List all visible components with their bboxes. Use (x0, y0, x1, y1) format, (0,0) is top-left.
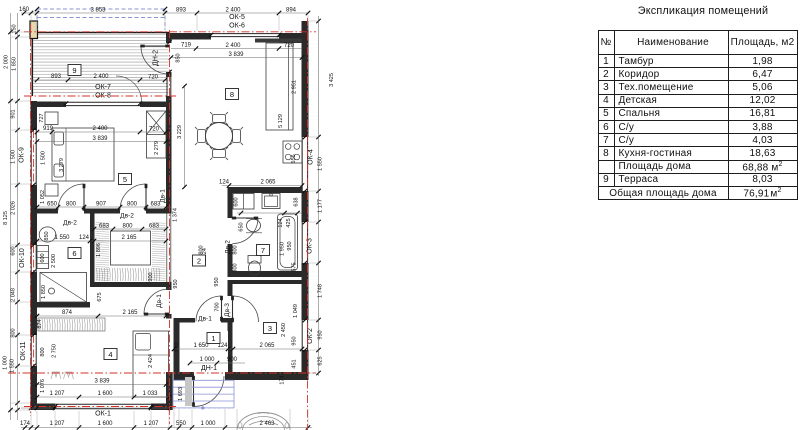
svg-text:1 950: 1 950 (280, 242, 286, 256)
svg-text:2 065: 2 065 (259, 343, 275, 349)
svg-text:Дв-2: Дв-2 (63, 220, 77, 227)
svg-text:ДН-1: ДН-1 (201, 365, 217, 372)
svg-text:1 500: 1 500 (41, 151, 47, 165)
svg-text:3 853: 3 853 (90, 8, 106, 14)
svg-text:ОК-2: ОК-2 (307, 328, 314, 344)
svg-text:727: 727 (39, 113, 45, 122)
svg-text:720: 720 (149, 127, 160, 133)
svg-text:3 839: 3 839 (228, 52, 244, 58)
svg-text:1 600: 1 600 (97, 421, 113, 427)
svg-text:800: 800 (11, 328, 17, 337)
svg-text:2 279: 2 279 (154, 141, 160, 155)
svg-text:ОК-11: ОК-11 (20, 341, 27, 360)
svg-text:650: 650 (47, 202, 58, 208)
svg-text:1 000: 1 000 (199, 357, 215, 363)
svg-text:9: 9 (72, 66, 76, 75)
svg-text:893: 893 (51, 74, 62, 80)
svg-text:1 207: 1 207 (143, 421, 159, 427)
svg-text:5: 5 (123, 175, 127, 184)
svg-text:720: 720 (148, 75, 159, 81)
svg-text:850: 850 (44, 231, 50, 240)
svg-text:600: 600 (234, 197, 240, 206)
svg-text:ОК-4: ОК-4 (308, 149, 315, 165)
svg-text:950: 950 (292, 336, 298, 345)
svg-text:451: 451 (292, 359, 298, 368)
svg-text:160: 160 (19, 7, 30, 13)
svg-text:625: 625 (318, 356, 324, 365)
svg-text:907: 907 (96, 202, 107, 208)
svg-text:1 177: 1 177 (318, 199, 324, 213)
svg-text:2 000: 2 000 (4, 55, 10, 69)
svg-text:1 374: 1 374 (173, 208, 179, 222)
svg-text:3: 3 (268, 324, 272, 333)
svg-text:124: 124 (219, 180, 230, 186)
svg-text:Дв-2: Дв-2 (120, 213, 134, 220)
svg-text:2 463: 2 463 (259, 421, 275, 427)
svg-text:683: 683 (149, 224, 160, 230)
svg-text:556: 556 (291, 154, 297, 163)
svg-text:8 125: 8 125 (3, 211, 9, 225)
svg-text:2 165: 2 165 (121, 235, 137, 241)
svg-text:ОК-10: ОК-10 (19, 248, 26, 268)
svg-text:2 951: 2 951 (292, 80, 298, 94)
svg-text:Дв-1: Дв-1 (160, 189, 167, 203)
svg-text:550: 550 (174, 342, 180, 351)
svg-text:8: 8 (230, 90, 234, 99)
svg-text:124: 124 (278, 218, 284, 227)
svg-text:174: 174 (20, 421, 31, 427)
svg-text:700: 700 (215, 302, 221, 311)
svg-text:893: 893 (176, 8, 187, 14)
svg-text:2 500: 2 500 (51, 254, 57, 268)
svg-text:174: 174 (280, 375, 286, 384)
svg-text:1 207: 1 207 (49, 421, 65, 427)
svg-text:5 129: 5 129 (278, 114, 284, 128)
svg-text:850: 850 (176, 53, 182, 62)
svg-text:3 229: 3 229 (177, 125, 183, 139)
svg-text:ДН-2: ДН-2 (153, 50, 160, 66)
svg-text:6: 6 (72, 249, 76, 258)
svg-text:1 550: 1 550 (54, 235, 70, 241)
svg-text:2 750: 2 750 (52, 344, 58, 358)
svg-text:919: 919 (43, 126, 54, 132)
svg-text:950: 950 (173, 279, 179, 288)
svg-text:900: 900 (227, 357, 238, 363)
svg-text:650: 650 (239, 222, 245, 231)
svg-text:950: 950 (318, 330, 324, 339)
svg-text:Дв-1: Дв-1 (156, 294, 163, 308)
svg-text:4: 4 (108, 350, 112, 359)
svg-text:1 076: 1 076 (40, 379, 46, 393)
svg-text:1 600: 1 600 (97, 391, 113, 397)
svg-text:675: 675 (97, 292, 103, 301)
svg-text:Дв-2: Дв-2 (225, 240, 232, 254)
svg-text:800: 800 (40, 347, 46, 356)
svg-text:3 425: 3 425 (329, 73, 335, 87)
svg-text:1 500: 1 500 (11, 150, 17, 164)
svg-text:720: 720 (284, 43, 295, 49)
svg-text:575: 575 (292, 262, 298, 271)
svg-text:2 026: 2 026 (11, 201, 17, 215)
svg-text:683: 683 (99, 224, 110, 230)
svg-text:800: 800 (66, 202, 77, 208)
svg-text:638: 638 (294, 197, 300, 206)
svg-text:1 748: 1 748 (318, 284, 324, 298)
svg-text:950: 950 (214, 277, 220, 286)
svg-text:874: 874 (62, 310, 73, 316)
svg-text:ОК-9: ОК-9 (19, 147, 26, 163)
svg-text:1 850: 1 850 (41, 285, 47, 299)
svg-text:600: 600 (40, 253, 46, 262)
svg-text:2 065: 2 065 (260, 180, 276, 186)
svg-text:800: 800 (122, 224, 133, 230)
svg-text:ОК-6: ОК-6 (229, 23, 245, 30)
svg-text:1 850: 1 850 (12, 57, 18, 71)
svg-text:874: 874 (37, 319, 43, 328)
svg-text:950: 950 (287, 241, 293, 250)
svg-text:ОК-5: ОК-5 (229, 14, 245, 21)
svg-text:Дв-1: Дв-1 (198, 316, 212, 323)
svg-text:900: 900 (148, 272, 154, 281)
svg-text:425: 425 (286, 218, 292, 227)
svg-text:124: 124 (79, 235, 90, 241)
svg-text:1 693: 1 693 (178, 387, 184, 401)
svg-text:ОК-1: ОК-1 (95, 411, 111, 418)
svg-text:2 400: 2 400 (225, 43, 241, 49)
svg-text:1 052: 1 052 (40, 190, 46, 204)
svg-text:800: 800 (199, 245, 205, 254)
svg-text:901: 901 (11, 109, 17, 118)
svg-text:2 400: 2 400 (92, 126, 108, 132)
svg-text:550: 550 (176, 421, 187, 427)
svg-text:2 400: 2 400 (225, 8, 241, 14)
svg-text:1 000: 1 000 (3, 356, 9, 370)
svg-text:1 000: 1 000 (200, 421, 216, 427)
svg-text:2 165: 2 165 (122, 310, 138, 316)
svg-text:600: 600 (11, 246, 17, 255)
svg-text:2: 2 (197, 256, 201, 265)
svg-text:7: 7 (261, 246, 265, 255)
svg-text:150: 150 (12, 24, 18, 33)
svg-text:2 400: 2 400 (93, 74, 109, 80)
svg-text:1: 1 (211, 334, 215, 343)
svg-text:800: 800 (233, 245, 239, 254)
svg-text:1 033: 1 033 (142, 391, 158, 397)
svg-text:ОК-7: ОК-7 (95, 84, 111, 91)
svg-text:1 207: 1 207 (49, 391, 65, 397)
svg-text:2 048: 2 048 (11, 288, 17, 302)
svg-text:800: 800 (127, 202, 138, 208)
svg-text:719: 719 (181, 43, 192, 49)
svg-text:3 839: 3 839 (94, 379, 110, 385)
svg-text:1 896: 1 896 (96, 243, 102, 257)
svg-text:Дв-3: Дв-3 (224, 303, 231, 317)
svg-text:2 424: 2 424 (148, 354, 154, 368)
svg-text:300: 300 (233, 263, 239, 272)
svg-text:2 450: 2 450 (281, 323, 287, 337)
svg-text:3 279: 3 279 (59, 158, 65, 172)
svg-text:1 550: 1 550 (318, 157, 324, 171)
svg-text:1 049: 1 049 (293, 304, 299, 318)
svg-text:3 839: 3 839 (92, 136, 108, 142)
svg-text:894: 894 (286, 8, 297, 14)
